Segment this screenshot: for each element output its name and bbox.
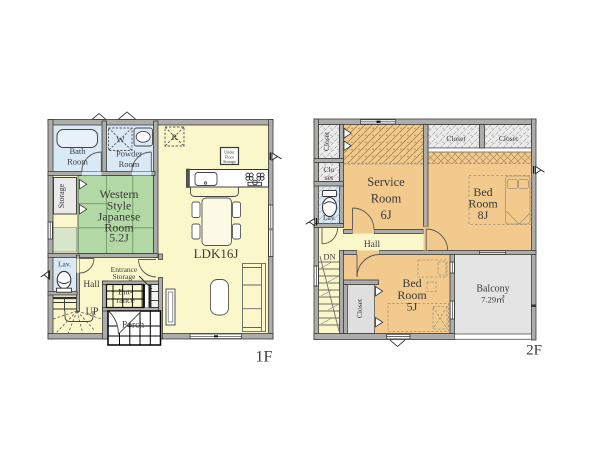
svg-text:Closet: Closet [499, 134, 519, 143]
svg-text:2F: 2F [526, 343, 542, 359]
svg-text:5.2J: 5.2J [109, 231, 129, 245]
svg-text:Room: Room [371, 192, 402, 206]
svg-text:Storage: Storage [223, 159, 236, 164]
svg-text:Hall: Hall [364, 240, 381, 250]
svg-text:DN: DN [323, 252, 335, 262]
svg-text:Lav.: Lav. [323, 213, 336, 222]
svg-text:UP: UP [86, 307, 99, 318]
svg-text:LDK16J: LDK16J [194, 246, 239, 261]
svg-text:R: R [172, 132, 178, 142]
svg-text:Service: Service [367, 175, 405, 189]
svg-text:Lav.: Lav. [58, 260, 71, 269]
svg-text:7.29㎡: 7.29㎡ [481, 295, 505, 305]
svg-text:Balcony: Balcony [476, 284, 509, 295]
svg-text:Bath: Bath [69, 146, 86, 156]
svg-text:Room: Room [67, 157, 88, 167]
svg-text:Closet: Closet [355, 298, 364, 318]
svg-text:Storage: Storage [113, 272, 137, 281]
svg-text:6J: 6J [380, 208, 391, 222]
svg-text:W: W [116, 135, 124, 145]
svg-text:Closet: Closet [446, 134, 466, 143]
svg-text:Porch: Porch [122, 321, 144, 331]
svg-text:8J: 8J [478, 208, 489, 222]
svg-text:Room: Room [119, 159, 140, 169]
svg-text:Hall: Hall [83, 280, 100, 290]
svg-text:5J: 5J [407, 300, 418, 314]
svg-text:Powder: Powder [116, 149, 142, 159]
svg-text:set: set [325, 173, 334, 182]
svg-text:Storage: Storage [57, 183, 66, 208]
svg-text:1F: 1F [256, 349, 273, 366]
svg-text:rance: rance [116, 295, 135, 305]
svg-text:Closet: Closet [322, 131, 331, 151]
